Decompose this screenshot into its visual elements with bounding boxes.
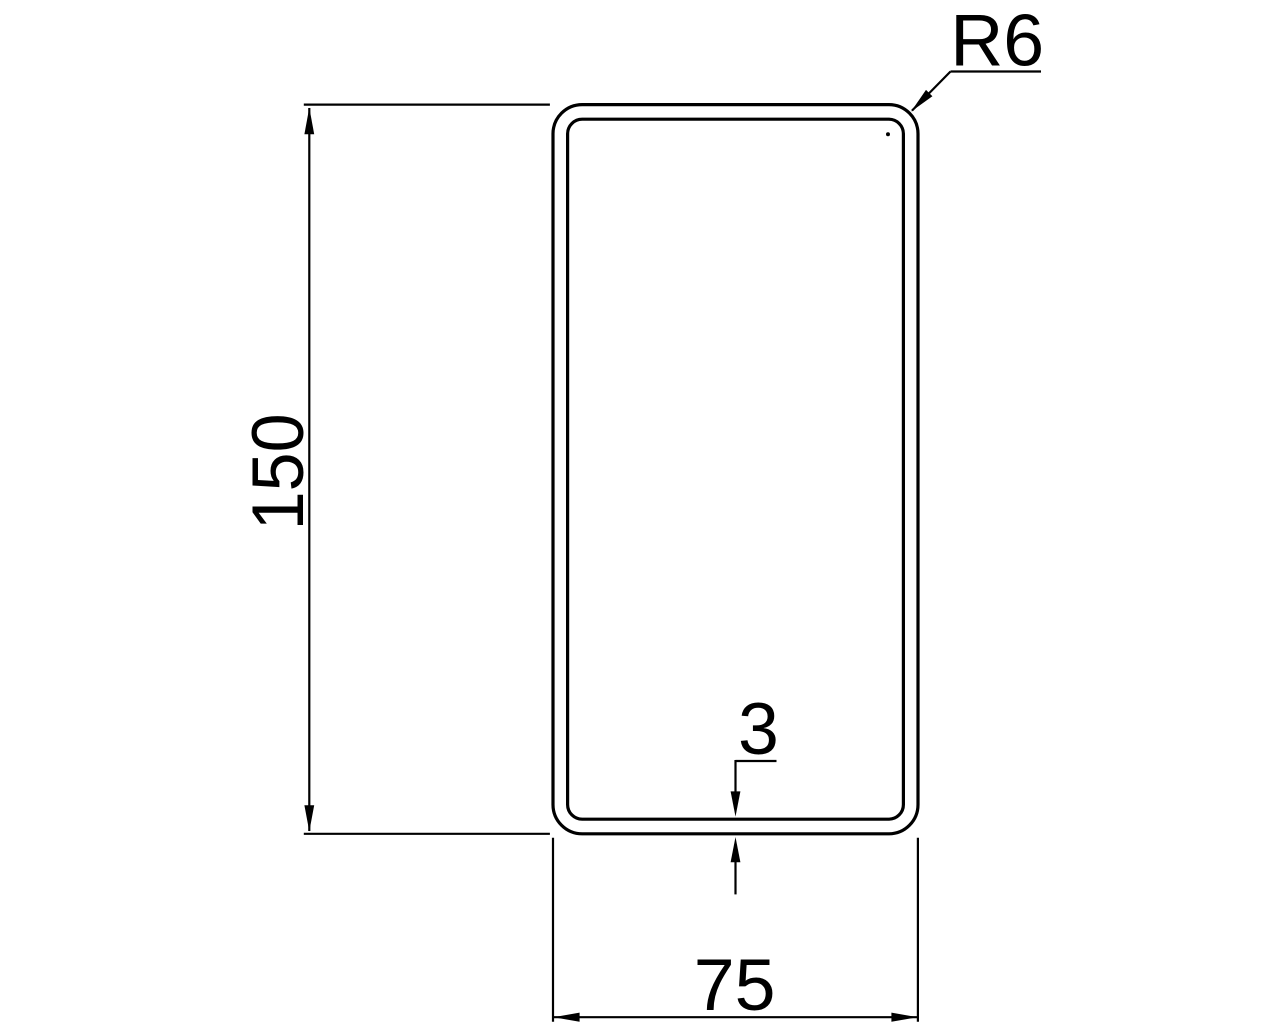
svg-text:R6: R6 [950, 0, 1044, 81]
svg-text:3: 3 [738, 687, 779, 770]
svg-text:150: 150 [236, 413, 319, 530]
svg-text:75: 75 [694, 943, 776, 1024]
